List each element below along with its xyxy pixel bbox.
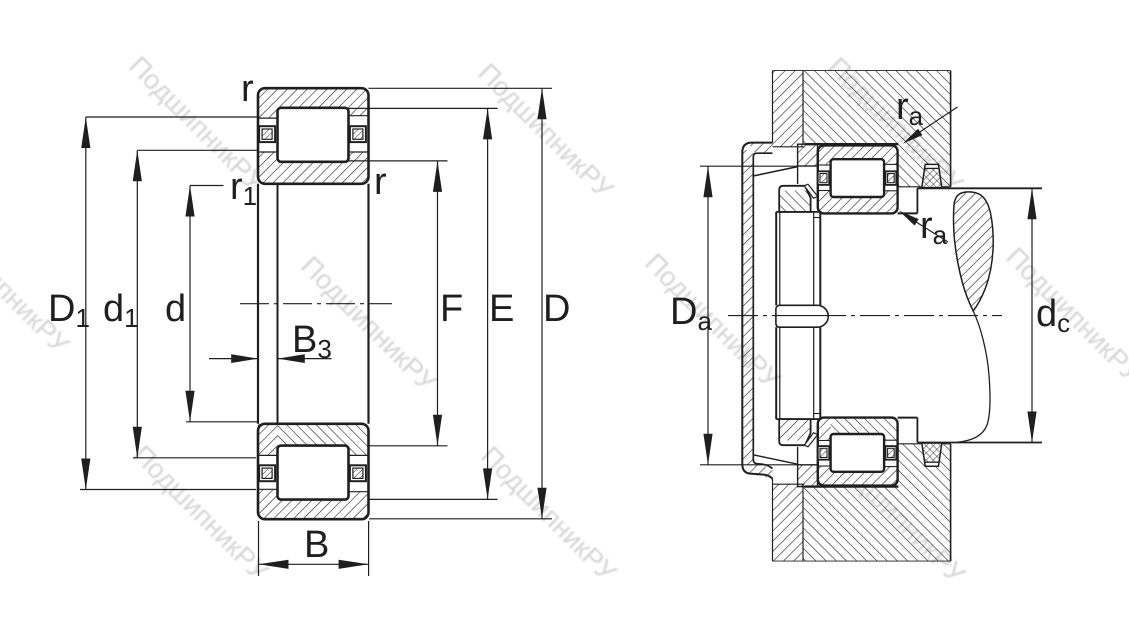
svg-text:B: B — [304, 524, 329, 566]
svg-text:d: d — [165, 288, 186, 330]
svg-text:E: E — [489, 288, 514, 330]
svg-text:r: r — [374, 161, 387, 203]
svg-text:D: D — [543, 288, 570, 330]
svg-text:r: r — [241, 68, 254, 110]
svg-text:F: F — [440, 288, 463, 330]
